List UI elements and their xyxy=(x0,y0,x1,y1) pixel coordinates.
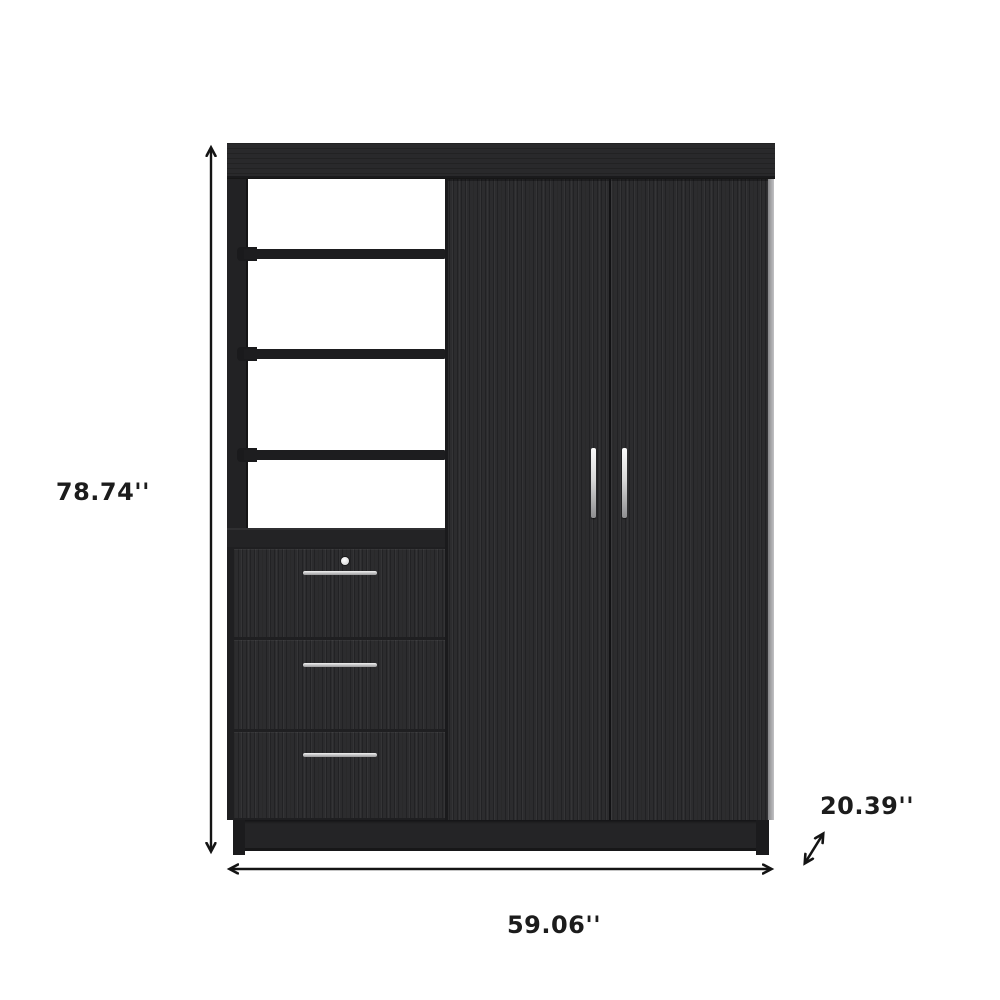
shelf-2 xyxy=(244,349,445,359)
right-side-edge xyxy=(768,179,774,820)
depth-arrow xyxy=(805,834,823,863)
wardrobe-top-cornice xyxy=(227,143,775,179)
door-seam xyxy=(609,179,611,820)
right-door-handle xyxy=(622,448,627,518)
drawer-section xyxy=(227,547,450,820)
door-panels xyxy=(445,179,768,820)
height-dimension-label: 78.74'' xyxy=(30,480,150,504)
right-foot xyxy=(756,820,769,855)
drawer-1-handle xyxy=(303,571,377,575)
drawer-2 xyxy=(234,640,446,729)
plinth xyxy=(240,820,764,851)
shelf-compartment-bottom xyxy=(227,528,450,547)
shelf-1 xyxy=(244,249,445,259)
shelf-3 xyxy=(244,450,445,460)
drawer-1 xyxy=(234,549,446,637)
drawer-3-handle xyxy=(303,753,377,757)
product-dimension-image: 78.74'' 59.06'' 20.39'' xyxy=(0,0,1000,1000)
drawer-knob xyxy=(341,557,349,565)
depth-dimension-label: 20.39'' xyxy=(807,794,927,818)
left-side-panel xyxy=(227,179,248,547)
left-foot xyxy=(233,820,245,855)
left-door-handle xyxy=(591,448,596,518)
width-dimension-label: 59.06'' xyxy=(494,913,614,937)
drawer-2-handle xyxy=(303,663,377,667)
drawer-3 xyxy=(234,732,446,818)
